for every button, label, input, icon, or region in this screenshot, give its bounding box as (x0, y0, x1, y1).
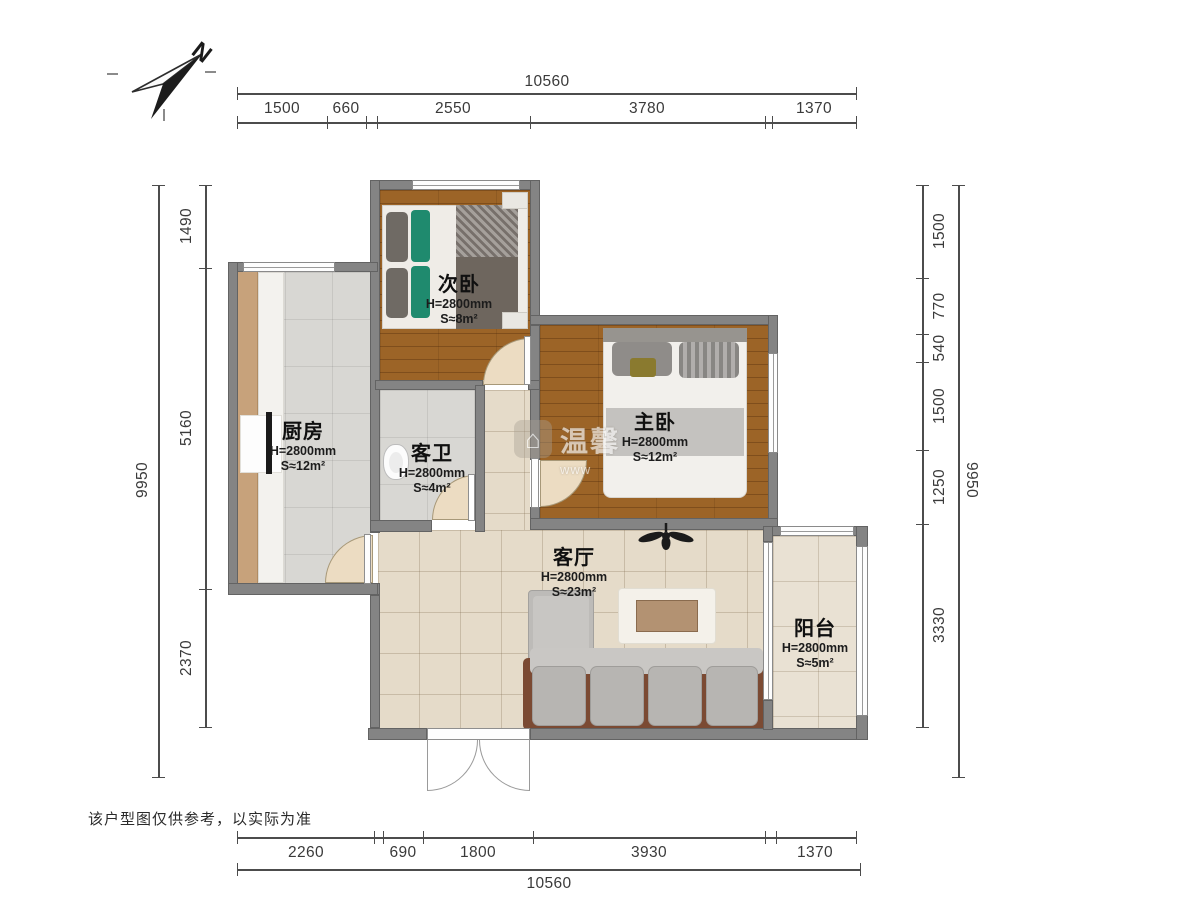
dim-bottom-seg: 690 (389, 844, 416, 862)
wall (530, 315, 778, 325)
dim-tick (952, 777, 965, 778)
floor-plan-canvas: N // bind compass label after data load … (0, 0, 1200, 900)
room-name: 次卧 (426, 268, 492, 297)
room-name: 客厅 (541, 541, 607, 570)
dim-tick (856, 116, 857, 129)
dim-right-seg: 540 (931, 334, 949, 361)
dim-tick (856, 831, 857, 844)
dim-tick (237, 87, 238, 100)
kitchen-window (243, 262, 335, 272)
disclaimer-text: 该户型图仅供参考，以实际为准 (88, 808, 312, 829)
watermark-text: 温馨 (560, 420, 620, 460)
second-bed-pillow-green (411, 210, 430, 262)
dim-right-seg: 770 (931, 292, 949, 319)
room-label-living-room: 客厅 H=2800mm S≈23m² (541, 541, 607, 600)
dim-tick (916, 450, 929, 451)
room-height: H=2800mm (622, 435, 688, 450)
room-name: 客卫 (399, 437, 465, 466)
dim-line (158, 185, 160, 778)
wall (763, 526, 773, 542)
dim-tick (916, 362, 929, 363)
balcony-door-window (763, 542, 773, 700)
sofa-seat-cushion (532, 666, 586, 726)
dim-tick (199, 185, 212, 186)
dim-right-seg: 3330 (931, 607, 949, 643)
room-area: S≈5m² (782, 656, 848, 671)
dim-bottom-total: 10560 (526, 875, 571, 893)
room-area: S≈4m² (399, 481, 465, 496)
dim-tick (366, 116, 367, 129)
dim-left-seg: 2370 (178, 640, 196, 676)
wall (370, 180, 380, 533)
dim-tick (199, 589, 212, 590)
dim-tick (237, 831, 238, 844)
watermark: ⌂ 温馨 www (514, 420, 620, 477)
dim-tick (530, 116, 531, 129)
room-height: H=2800mm (426, 297, 492, 312)
house-icon: ⌂ (514, 420, 552, 458)
second-bed-throw (456, 205, 518, 257)
dim-line (922, 185, 924, 728)
dim-line (237, 837, 857, 839)
wall (228, 583, 378, 595)
balcony-top-window (780, 526, 854, 536)
bathroom-door (468, 474, 475, 521)
ceiling-fan-icon (638, 522, 694, 552)
dim-tick (383, 831, 384, 844)
dim-tick (374, 831, 375, 844)
wall (530, 180, 540, 325)
dim-tick (377, 116, 378, 129)
dim-left-total: 9950 (134, 462, 152, 498)
dim-bottom-seg: 2260 (288, 844, 324, 862)
wall (368, 728, 427, 740)
wall (530, 728, 868, 740)
wall (370, 595, 380, 728)
dim-line (958, 185, 960, 778)
entry-door-right-swing (479, 740, 530, 791)
second-bed-pillow (386, 268, 408, 318)
watermark-sub: www (560, 462, 620, 477)
wall (475, 385, 485, 532)
room-label-kitchen: 厨房 H=2800mm S≈12m² (270, 415, 336, 474)
dim-top-total: 10560 (524, 73, 569, 91)
dim-bottom-seg: 1370 (797, 844, 833, 862)
second-bedroom-window (412, 180, 520, 190)
room-label-second-bedroom: 次卧 H=2800mm S≈8m² (426, 268, 492, 327)
dim-tick (533, 831, 534, 844)
dim-tick (237, 863, 238, 876)
dim-left-seg: 1490 (178, 208, 196, 244)
wall (370, 520, 432, 532)
dim-tick (772, 116, 773, 129)
dim-tick (327, 116, 328, 129)
dim-top-seg: 660 (332, 100, 359, 118)
sofa-seat-cushion (590, 666, 644, 726)
dim-tick (952, 185, 965, 186)
dim-tick (916, 524, 929, 525)
dim-left-seg: 5160 (178, 410, 196, 446)
room-name: 主卧 (622, 406, 688, 435)
dim-line (205, 185, 207, 728)
master-bed-headboard (603, 328, 747, 342)
master-bed-pillow (679, 342, 739, 378)
room-height: H=2800mm (541, 570, 607, 585)
sofa-seat-cushion (648, 666, 702, 726)
room-height: H=2800mm (782, 641, 848, 656)
kitchen-door (364, 534, 371, 584)
dim-tick (152, 185, 165, 186)
nightstand (502, 312, 528, 329)
wall (763, 700, 773, 730)
dim-right-seg: 1500 (931, 388, 949, 424)
dim-bottom-seg: 1800 (460, 844, 496, 862)
wall (375, 380, 483, 390)
nightstand (502, 192, 528, 209)
dim-top-seg: 1500 (264, 100, 300, 118)
dim-tick (916, 185, 929, 186)
master-bedroom-window (768, 353, 778, 453)
room-name: 厨房 (270, 415, 336, 444)
room-label-balcony: 阳台 H=2800mm S≈5m² (782, 612, 848, 671)
room-height: H=2800mm (399, 466, 465, 481)
dim-line (237, 122, 857, 124)
dim-right-seg: 1500 (931, 213, 949, 249)
room-name: 阳台 (782, 612, 848, 641)
dim-top-seg: 1370 (796, 100, 832, 118)
second-bed-pillow (386, 212, 408, 262)
north-compass-icon: N (105, 35, 225, 130)
dim-tick (916, 334, 929, 335)
dim-tick (199, 268, 212, 269)
room-area: S≈23m² (541, 585, 607, 600)
dim-tick (916, 278, 929, 279)
dim-tick (423, 831, 424, 844)
dim-tick (199, 727, 212, 728)
dim-tick (237, 116, 238, 129)
room-area: S≈12m² (622, 450, 688, 465)
dim-tick (776, 831, 777, 844)
balcony-right-window (856, 546, 868, 716)
dim-tick (856, 87, 857, 100)
dim-line (237, 93, 857, 95)
master-bed-cushion-olive (630, 358, 656, 377)
dim-right-seg: 1250 (931, 469, 949, 505)
coffee-table (636, 600, 698, 632)
dim-tick (765, 116, 766, 129)
room-area: S≈12m² (270, 459, 336, 474)
second-bedroom-door (524, 336, 531, 385)
room-area: S≈8m² (426, 312, 492, 327)
sofa-seat-cushion (706, 666, 758, 726)
wall (228, 262, 238, 595)
dim-right-total: 9950 (962, 462, 980, 498)
dim-tick (916, 727, 929, 728)
dim-top-seg: 3780 (629, 100, 665, 118)
entry-threshold (427, 728, 530, 740)
dim-tick (860, 863, 861, 876)
room-label-guest-bathroom: 客卫 H=2800mm S≈4m² (399, 437, 465, 496)
room-height: H=2800mm (270, 444, 336, 459)
entry-door-left-swing (427, 740, 478, 791)
dim-line (237, 869, 861, 871)
dim-tick (765, 831, 766, 844)
dim-top-seg: 2550 (435, 100, 471, 118)
room-label-master-bedroom: 主卧 H=2800mm S≈12m² (622, 406, 688, 465)
dim-bottom-seg: 3930 (631, 844, 667, 862)
dim-tick (152, 777, 165, 778)
